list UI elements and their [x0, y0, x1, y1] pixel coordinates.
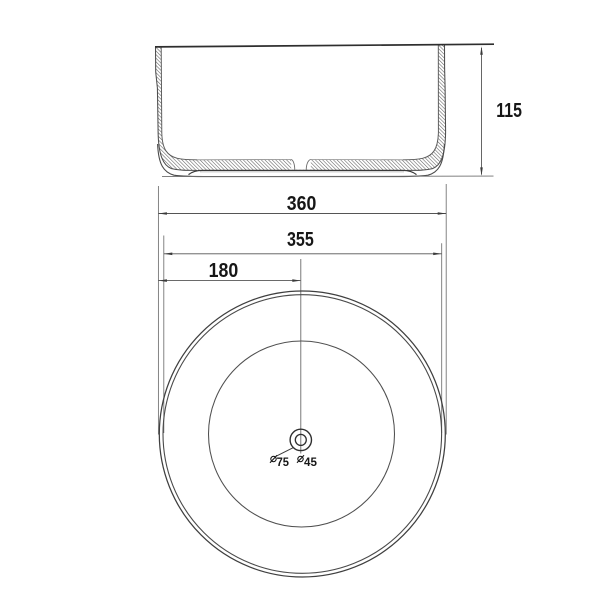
- svg-text:75: 75: [277, 455, 290, 469]
- svg-text:360: 360: [287, 193, 317, 215]
- svg-text:115: 115: [496, 100, 522, 122]
- svg-text:180: 180: [209, 260, 239, 282]
- svg-text:45: 45: [304, 455, 317, 469]
- svg-text:355: 355: [287, 229, 314, 251]
